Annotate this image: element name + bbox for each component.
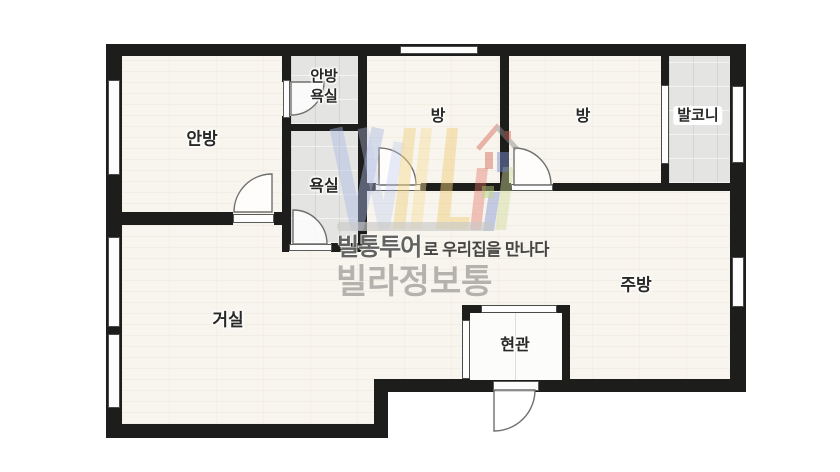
label-master-bathroom: 안방 욕실 (310, 67, 338, 107)
label-room2: 방 (576, 102, 591, 126)
label-kitchen: 주방 (620, 271, 651, 296)
door-arc-room2 (514, 148, 551, 185)
label-balcony: 발코니 (673, 106, 722, 126)
label-living-room: 거실 (212, 306, 243, 331)
floorplan: 안방 안방 욕실 욕실 방 방 발코니 거실 주방 현관 (0, 0, 840, 472)
door-arc-bathroom (293, 210, 327, 244)
label-entrance: 현관 (500, 331, 529, 355)
door-arcs (0, 0, 840, 472)
label-master-bathroom-line1: 안방 (310, 67, 338, 87)
door-arc-room1 (379, 148, 416, 185)
label-bathroom: 욕실 (309, 172, 338, 196)
door-arc-master-bedroom (234, 174, 272, 212)
label-room1: 방 (431, 102, 446, 126)
label-master-bathroom-line2: 욕실 (310, 87, 338, 107)
door-arc-entrance (494, 390, 535, 431)
label-master-bedroom: 안방 (186, 125, 217, 150)
label-balcony-text: 발코니 (673, 106, 722, 125)
